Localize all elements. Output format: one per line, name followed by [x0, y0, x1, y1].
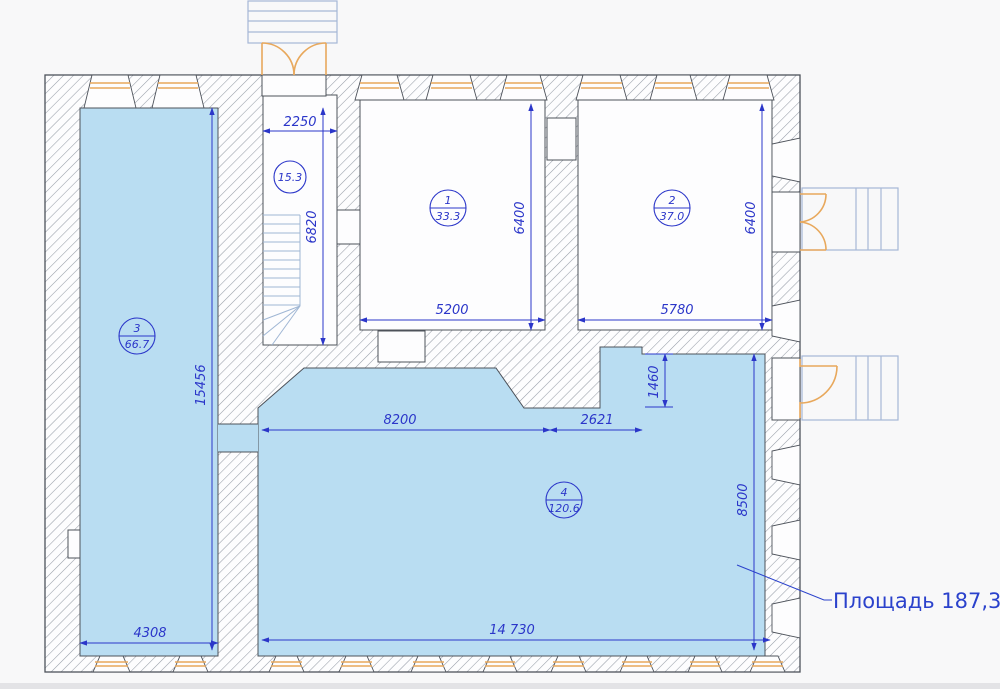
window	[772, 138, 800, 182]
dim-room1-width: 5200	[435, 303, 468, 318]
room-number: 3	[134, 322, 141, 335]
room-number: 1	[445, 194, 452, 207]
right-upper-entrance-opening	[772, 192, 800, 252]
dim-room4-top-left: 8200	[383, 413, 416, 428]
corridor-passage	[218, 424, 258, 452]
dim-room1-depth: 6400	[513, 201, 528, 234]
floorplan-drawing: 2250 6820 5200 6400 5780 6400 15456 4308…	[0, 0, 1000, 689]
window	[84, 75, 136, 108]
room1-niche	[378, 331, 425, 362]
main-entrance-opening	[262, 75, 326, 96]
page-edge-shadow	[0, 683, 1000, 689]
window	[772, 598, 800, 638]
right-lower-entrance-opening	[772, 358, 800, 420]
dim-room2-depth: 6400	[744, 201, 759, 234]
dim-room4-top-right: 2621	[580, 413, 613, 428]
dim-stair-depth: 6820	[305, 210, 320, 243]
room-area: 33.3	[436, 210, 461, 223]
stair-area: 15.3	[278, 171, 303, 184]
dim-room3-depth: 15456	[194, 364, 209, 405]
room-3-label: 3 66.7	[119, 318, 155, 354]
window	[93, 656, 130, 672]
stairhall-door-opening	[337, 210, 360, 244]
area-callout-text: Площадь 187,3м2	[833, 589, 1000, 613]
left-wall-niche	[68, 530, 80, 558]
room-1-label: 1 33.3	[430, 190, 466, 226]
window	[772, 520, 800, 560]
room-area: 37.0	[660, 210, 685, 223]
dim-room4-step: 1460	[647, 365, 662, 398]
floorplan-canvas: 2250 6820 5200 6400 5780 6400 15456 4308…	[0, 0, 1000, 689]
dim-stair-width: 2250	[283, 115, 316, 130]
room-4	[258, 347, 765, 656]
room-number: 4	[561, 486, 568, 499]
room-4-label: 4 120.6	[546, 482, 582, 518]
window	[772, 445, 800, 485]
room-area: 120.6	[548, 502, 580, 515]
window	[152, 75, 204, 108]
dim-room2-width: 5780	[660, 303, 693, 318]
window	[772, 300, 800, 342]
dim-room4-depth: 8500	[736, 483, 751, 516]
dim-room4-width: 14 730	[489, 623, 535, 638]
room-number: 2	[669, 194, 676, 207]
room-area: 66.7	[125, 338, 150, 351]
room-2-label: 2 37.0	[654, 190, 690, 226]
dim-room3-width: 4308	[133, 626, 166, 641]
room1-room2-opening	[547, 118, 576, 160]
